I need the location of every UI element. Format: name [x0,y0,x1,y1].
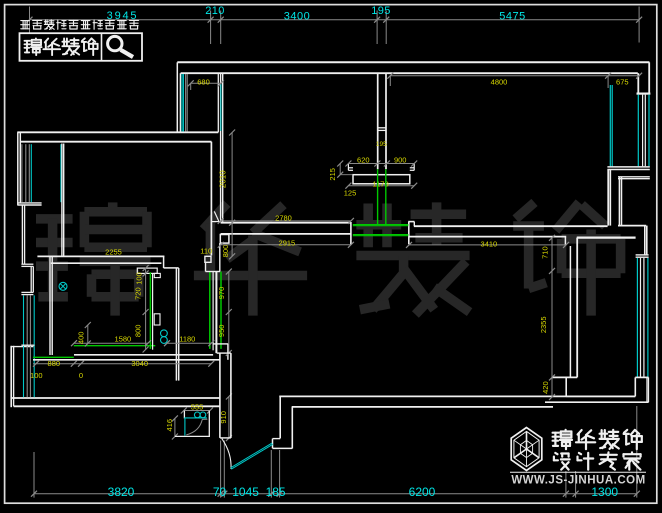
svg-text:710: 710 [540,246,549,259]
svg-text:3400: 3400 [284,11,310,23]
svg-text:70: 70 [213,485,227,499]
svg-text:2255: 2255 [105,247,122,256]
svg-text:416: 416 [165,419,174,432]
svg-text:675: 675 [616,78,629,87]
svg-text:5475: 5475 [499,11,525,23]
svg-text:110: 110 [200,246,212,255]
svg-text:0: 0 [79,371,83,380]
svg-text:2780: 2780 [275,213,292,222]
svg-text:1180: 1180 [179,335,195,344]
svg-text:210: 210 [205,5,225,17]
svg-text:WWW.JS-JINHUA.COM: WWW.JS-JINHUA.COM [511,474,645,486]
svg-text:195: 195 [371,5,391,17]
svg-text:620: 620 [357,155,370,164]
svg-text:1045: 1045 [232,485,259,499]
svg-text:185: 185 [266,485,286,499]
svg-text:420: 420 [541,381,550,394]
svg-text:400: 400 [77,332,86,345]
svg-text:680: 680 [197,77,210,86]
svg-text:6200: 6200 [409,485,436,499]
svg-text:950: 950 [217,325,226,338]
svg-text:100: 100 [30,371,43,380]
svg-text:3040: 3040 [131,359,148,368]
svg-text:195: 195 [376,141,387,148]
svg-text:3820: 3820 [108,485,135,499]
svg-text:800: 800 [134,325,143,338]
svg-text:880: 880 [48,359,61,368]
svg-text:1300: 1300 [591,485,618,499]
svg-text:215: 215 [328,168,337,181]
svg-text:3410: 3410 [481,240,498,249]
svg-text:2355: 2355 [539,316,548,333]
svg-text:4800: 4800 [491,78,508,87]
svg-text:100: 100 [134,272,143,285]
svg-text:720: 720 [134,287,143,300]
svg-text:970: 970 [217,287,226,300]
svg-text:2915: 2915 [279,238,296,247]
svg-text:555: 555 [191,403,204,412]
svg-text:2010: 2010 [218,170,227,188]
svg-text:125: 125 [344,189,357,198]
svg-text:1580: 1580 [115,335,132,344]
svg-text:900: 900 [394,155,407,164]
svg-text:800: 800 [221,245,230,258]
